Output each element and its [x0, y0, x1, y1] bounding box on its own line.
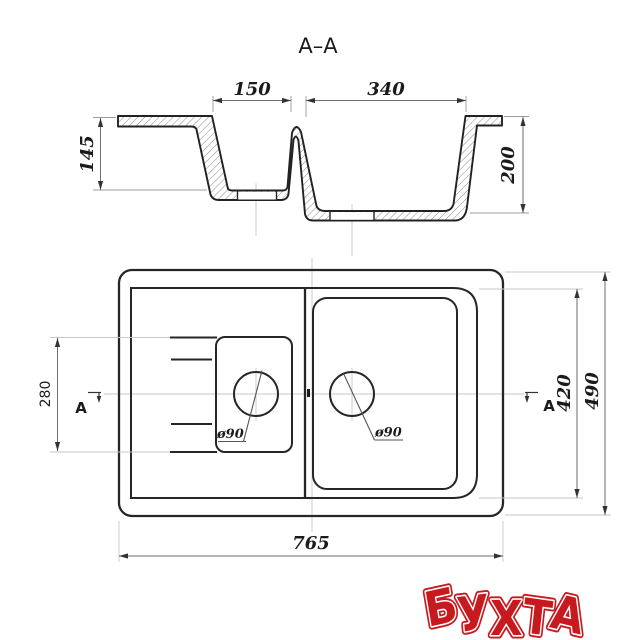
dimension-200: 200 [470, 117, 529, 214]
dimension-420: 420 [479, 289, 583, 498]
dimension-150: 150 [213, 79, 291, 112]
large-basin-outline [313, 298, 457, 489]
sink-shell-section [118, 116, 502, 221]
section-view: A–A 150 [77, 34, 529, 256]
section-title: A–A [298, 34, 338, 58]
dim-420-label: 420 [554, 374, 575, 412]
section-marker-right: A [525, 393, 555, 416]
dimension-765: 765 [119, 521, 503, 562]
dim-340-label: 340 [367, 79, 405, 100]
section-marker-left-label: A [75, 399, 87, 417]
dim-490-label: 490 [582, 372, 603, 410]
dim-765-label: 765 [292, 533, 330, 554]
sink-outer-edge [119, 270, 503, 516]
dimension-340: 340 [306, 79, 466, 117]
small-drain-diameter-label: ø90 [216, 427, 244, 442]
brand-logo: БУХТА БУХТА [420, 577, 589, 640]
dim-200-label: 200 [498, 146, 519, 185]
dimension-280: 280 [38, 338, 170, 453]
plan-view: ø90 ø90 280 420 [38, 258, 611, 562]
section-marker-right-label: A [543, 397, 555, 415]
dim-280-label: 280 [38, 381, 54, 408]
dim-150-label: 150 [233, 79, 271, 100]
drainboard-grooves [170, 338, 217, 453]
brand-logo-text: БУХТА [420, 577, 589, 640]
large-drain-diameter-label: ø90 [374, 426, 402, 441]
drawing-svg: A–A 150 [0, 0, 640, 640]
dimension-145: 145 [77, 118, 207, 191]
small-basin-drain: ø90 [216, 371, 278, 443]
large-basin-drain-opening [330, 211, 374, 221]
sink-technical-drawing: A–A 150 [0, 0, 640, 640]
section-marker-left: A [75, 393, 101, 418]
dim-145-label: 145 [77, 135, 98, 173]
large-basin-drain: ø90 [330, 372, 403, 441]
